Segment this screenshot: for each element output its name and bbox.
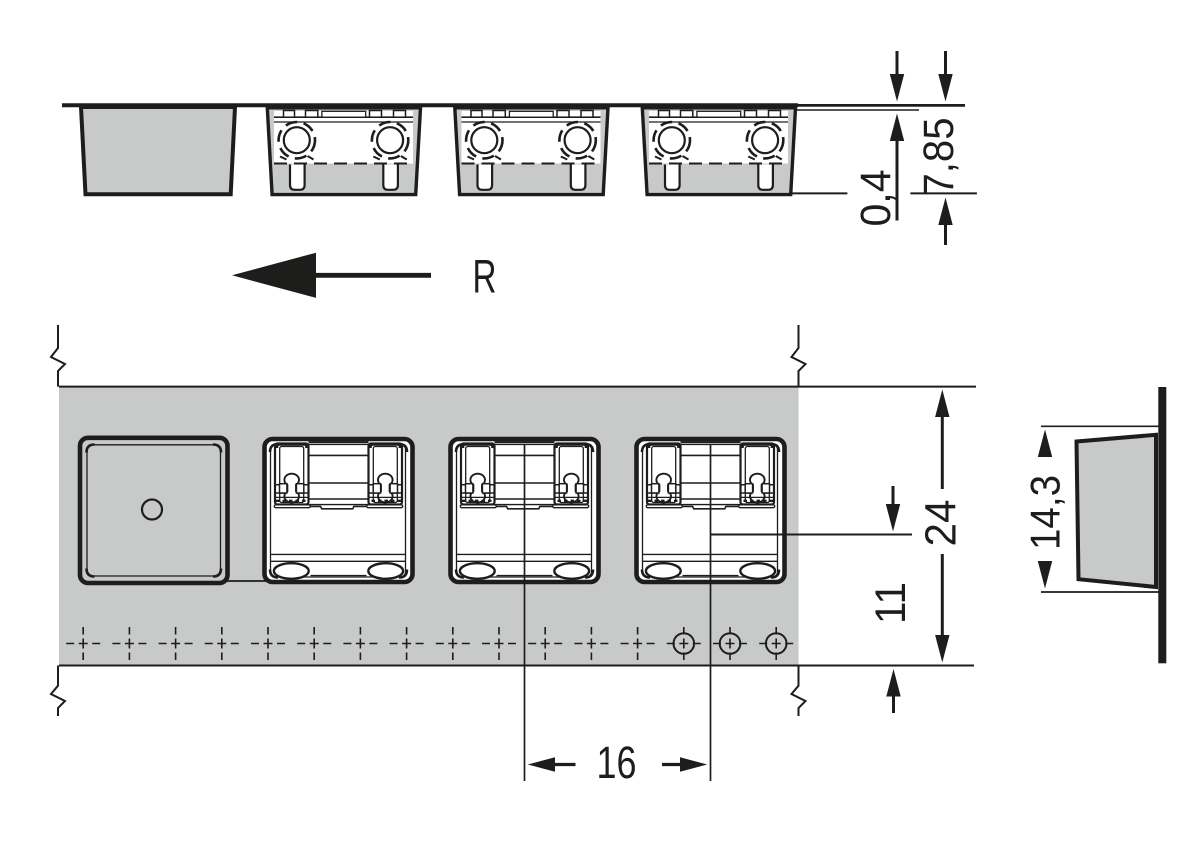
svg-text:0,4: 0,4: [852, 170, 900, 227]
svg-text:11: 11: [868, 582, 915, 624]
svg-text:7,85: 7,85: [915, 118, 963, 196]
svg-text:24: 24: [917, 500, 966, 547]
svg-text:16: 16: [597, 737, 637, 788]
svg-text:14,3: 14,3: [1022, 475, 1069, 550]
svg-text:R: R: [473, 251, 497, 304]
